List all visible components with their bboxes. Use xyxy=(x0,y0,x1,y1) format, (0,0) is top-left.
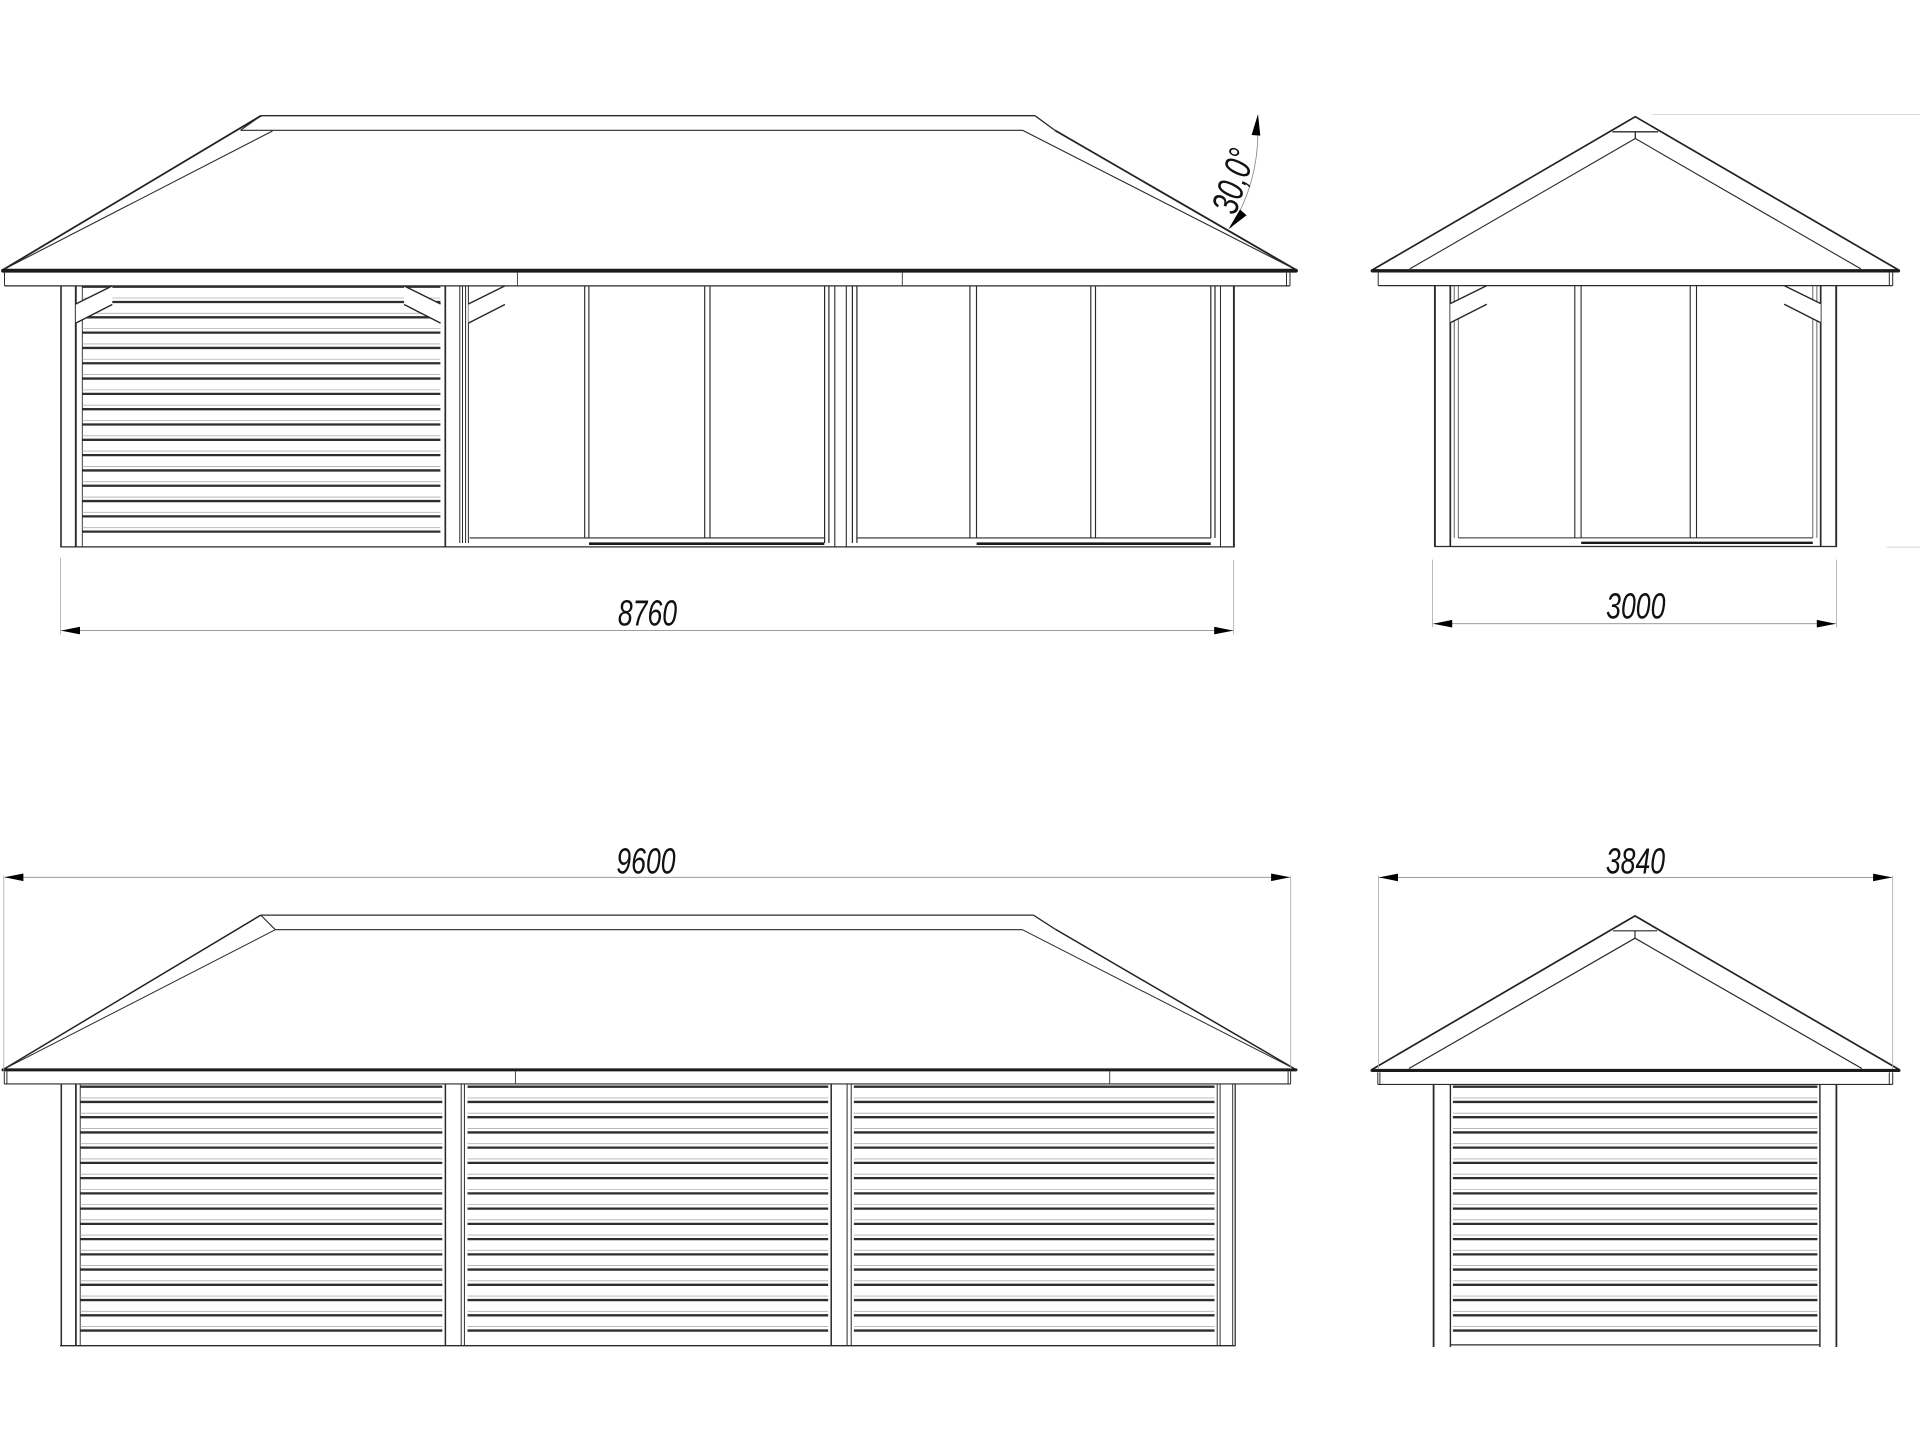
svg-text:8760: 8760 xyxy=(618,593,678,634)
svg-text:9600: 9600 xyxy=(616,840,676,881)
svg-text:3840: 3840 xyxy=(1606,840,1666,881)
svg-text:3000: 3000 xyxy=(1606,586,1666,627)
